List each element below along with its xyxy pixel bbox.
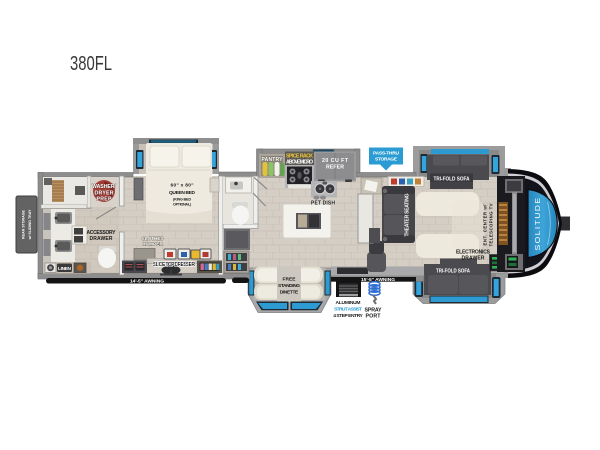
svg-text:FREE: FREE — [283, 277, 297, 283]
svg-text:ENT. CENTER w/: ENT. CENTER w/ — [483, 204, 488, 246]
svg-text:LINEN: LINEN — [58, 266, 72, 272]
svg-text:60" x 80": 60" x 80" — [171, 183, 194, 189]
svg-text:WASHER/: WASHER/ — [92, 184, 117, 190]
svg-text:14'-5" AWNING: 14'-5" AWNING — [130, 279, 164, 285]
svg-text:SOLITUDE: SOLITUDE — [533, 197, 542, 251]
svg-text:PASS-THRU: PASS-THRU — [373, 151, 399, 157]
svg-text:STRUT ASSIST: STRUT ASSIST — [334, 307, 362, 313]
svg-text:PREP: PREP — [97, 197, 113, 203]
svg-text:ALUMINUM: ALUMINUM — [336, 300, 361, 306]
svg-text:ABOVE MICRO: ABOVE MICRO — [286, 159, 313, 165]
svg-text:PORT: PORT — [366, 314, 382, 320]
svg-text:DINETTE: DINETTE — [280, 289, 299, 295]
svg-text:REFER: REFER — [326, 165, 344, 171]
svg-text:DRAWER: DRAWER — [90, 236, 113, 242]
svg-text:HAMPER: HAMPER — [142, 242, 164, 248]
svg-text:TRI-FOLD SOFA: TRI-FOLD SOFA — [434, 176, 470, 182]
svg-text:THEATER SEATING: THEATER SEATING — [405, 193, 411, 236]
svg-text:TRI-FOLD SOFA: TRI-FOLD SOFA — [436, 268, 470, 274]
svg-text:SLIDE TOP DRESSER: SLIDE TOP DRESSER — [153, 262, 195, 268]
svg-text:4 STEP ENTRY: 4 STEP ENTRY — [333, 313, 363, 319]
svg-text:(KING BED: (KING BED — [173, 197, 191, 201]
svg-text:DRAWER: DRAWER — [462, 256, 485, 262]
svg-text:SPRAY: SPRAY — [365, 307, 382, 313]
svg-text:w/ SLIDING TRAY: w/ SLIDING TRAY — [28, 209, 32, 240]
svg-text:REAR STORAGE: REAR STORAGE — [22, 209, 26, 238]
svg-text:TELESCOPING TV: TELESCOPING TV — [489, 203, 494, 246]
svg-text:STANDING: STANDING — [278, 283, 300, 289]
svg-text:OPTIONAL): OPTIONAL) — [173, 202, 192, 206]
svg-text:20 CU FT: 20 CU FT — [322, 158, 349, 164]
svg-text:PANTRY: PANTRY — [262, 157, 284, 163]
svg-text:380FL: 380FL — [70, 53, 112, 75]
svg-text:STORAGE: STORAGE — [375, 157, 398, 163]
svg-text:CLOTHES: CLOTHES — [142, 236, 165, 242]
svg-text:PET DISH: PET DISH — [311, 201, 335, 207]
svg-text:QUEEN BED: QUEEN BED — [169, 190, 196, 196]
